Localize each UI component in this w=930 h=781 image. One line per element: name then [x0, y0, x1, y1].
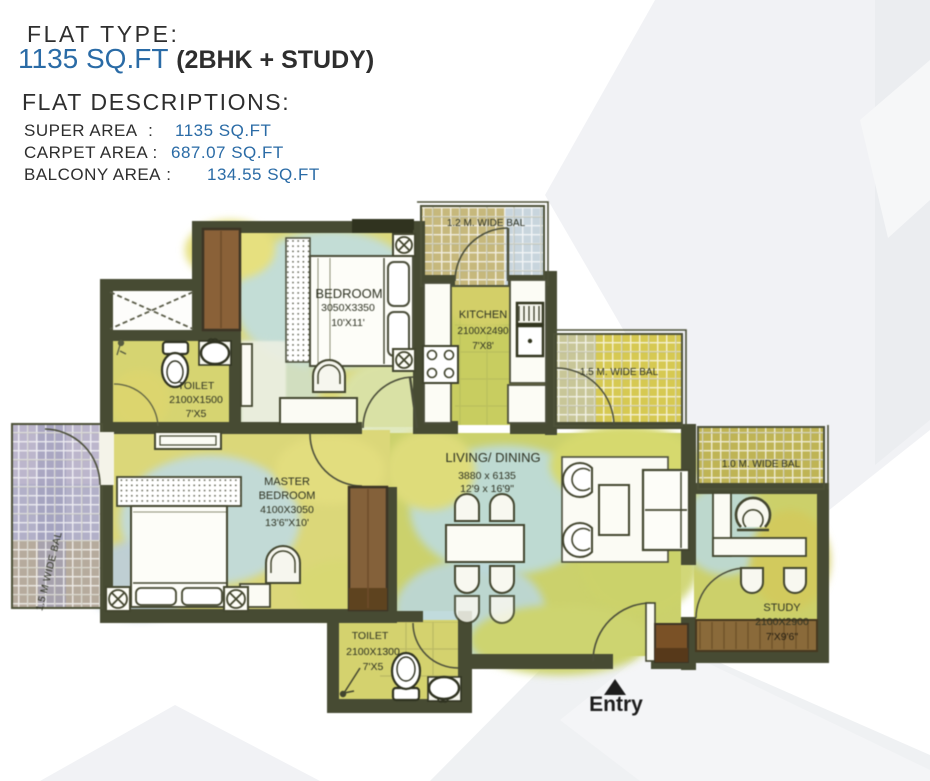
- svg-text:1.5 M. WIDE BAL: 1.5 M. WIDE BAL: [580, 367, 659, 378]
- svg-text:3880 x 6135: 3880 x 6135: [458, 470, 516, 482]
- svg-text:1.0 M. WIDE BAL: 1.0 M. WIDE BAL: [722, 459, 801, 470]
- svg-text:2100X2900: 2100X2900: [755, 616, 809, 628]
- svg-text:10'X11': 10'X11': [331, 317, 365, 329]
- svg-text:KITCHEN: KITCHEN: [459, 309, 507, 321]
- svg-text:Entry: Entry: [589, 693, 643, 716]
- svg-text:2100X1300: 2100X1300: [346, 646, 400, 658]
- svg-text:7'X9'6": 7'X9'6": [766, 631, 799, 643]
- svg-text:4100X3050: 4100X3050: [260, 504, 314, 516]
- svg-text:TOILET: TOILET: [352, 630, 389, 642]
- svg-text:MASTER: MASTER: [264, 476, 310, 488]
- svg-text:2100X1500: 2100X1500: [169, 394, 223, 406]
- svg-text:3050X3350: 3050X3350: [321, 302, 375, 314]
- svg-text:TOILET: TOILET: [178, 380, 215, 392]
- svg-text:7'X5: 7'X5: [186, 408, 207, 420]
- svg-text:BEDROOM: BEDROOM: [315, 286, 382, 301]
- svg-text:2100X2490: 2100X2490: [457, 326, 509, 337]
- svg-text:1.2 M. WIDE BAL: 1.2 M. WIDE BAL: [447, 218, 526, 229]
- svg-text:STUDY: STUDY: [763, 602, 801, 614]
- svg-text:LIVING/ DINING: LIVING/ DINING: [445, 450, 540, 465]
- svg-text:13'6"X10': 13'6"X10': [265, 517, 309, 529]
- svg-text:7'X5: 7'X5: [363, 661, 384, 673]
- svg-text:BEDROOM: BEDROOM: [259, 490, 316, 502]
- svg-text:12'9 x 16'9": 12'9 x 16'9": [460, 483, 514, 495]
- svg-text:7'X8': 7'X8': [472, 341, 494, 352]
